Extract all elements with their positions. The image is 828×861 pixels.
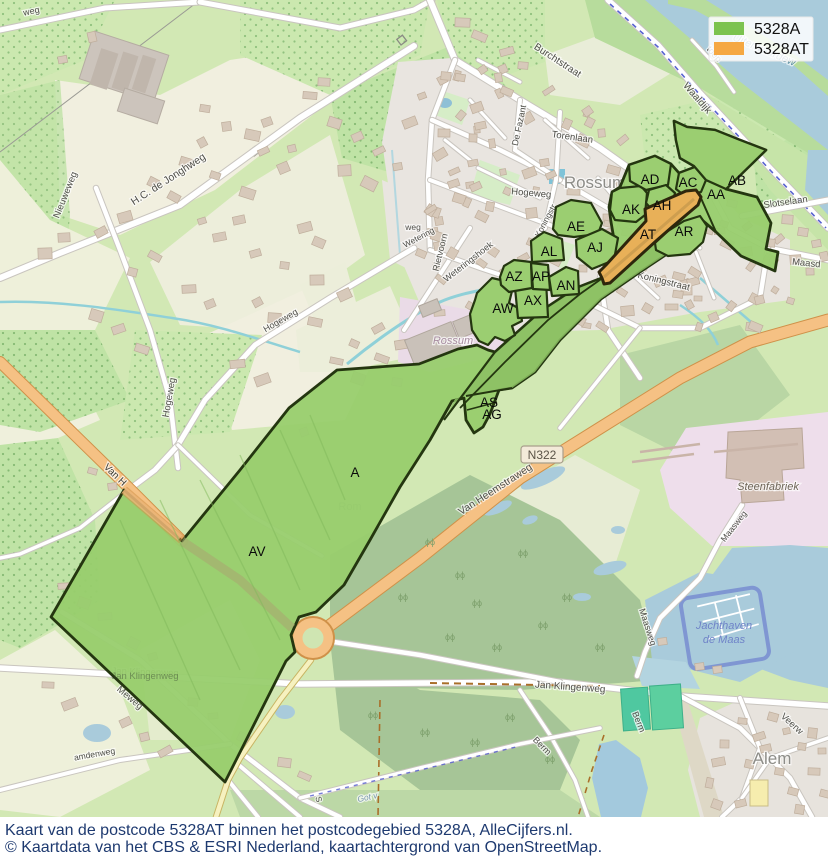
svg-text:ϕϕ: ϕϕ [455,570,465,580]
svg-text:ϕϕ: ϕϕ [518,548,528,558]
svg-text:AD: AD [641,172,660,187]
svg-text:ϕϕ: ϕϕ [445,632,455,642]
svg-text:AR: AR [675,224,694,239]
svg-text:ϕϕ: ϕϕ [420,727,430,737]
svg-text:AT: AT [640,227,656,242]
svg-text:AN: AN [557,278,576,293]
svg-text:5328AT: 5328AT [754,41,809,58]
svg-text:ϕϕ: ϕϕ [505,712,515,722]
svg-text:weg: weg [404,222,421,232]
svg-text:AX: AX [524,293,542,308]
svg-text:ϕϕ: ϕϕ [538,620,548,630]
svg-text:AB: AB [728,173,746,188]
svg-text:AK: AK [622,202,640,217]
svg-text:Steenfabriek: Steenfabriek [737,481,799,493]
svg-text:Jan Klingenweg: Jan Klingenweg [111,671,178,682]
svg-text:Rossum: Rossum [433,335,473,347]
svg-text:ϕϕ: ϕϕ [472,598,482,608]
svg-text:A: A [350,465,359,480]
svg-text:ϕϕ: ϕϕ [398,592,408,602]
svg-text:AC: AC [679,175,698,190]
svg-text:AG: AG [482,407,502,422]
svg-text:AZ: AZ [505,269,522,284]
svg-text:N322: N322 [528,448,557,462]
svg-text:Jachthaven: Jachthaven [695,620,752,632]
svg-text:ϕϕ: ϕϕ [492,642,502,652]
svg-text:ϕϕ: ϕϕ [470,737,480,747]
svg-text:ϕϕ: ϕϕ [425,537,435,547]
svg-text:AV: AV [248,544,265,559]
svg-text:de Maas: de Maas [703,634,746,646]
svg-text:ϕϕ: ϕϕ [368,710,378,720]
svg-text:AH: AH [653,198,672,213]
svg-text:AE: AE [567,219,585,234]
svg-text:AL: AL [541,244,558,259]
svg-text:ϕϕ: ϕϕ [595,642,605,652]
svg-text:Alem: Alem [753,749,792,768]
svg-text:5328A: 5328A [754,21,801,38]
svg-text:AA: AA [707,187,725,202]
svg-text:AP: AP [532,269,550,284]
svg-text:AW: AW [492,301,514,316]
svg-text:AJ: AJ [587,240,603,255]
svg-text:ϕϕ: ϕϕ [562,592,572,602]
